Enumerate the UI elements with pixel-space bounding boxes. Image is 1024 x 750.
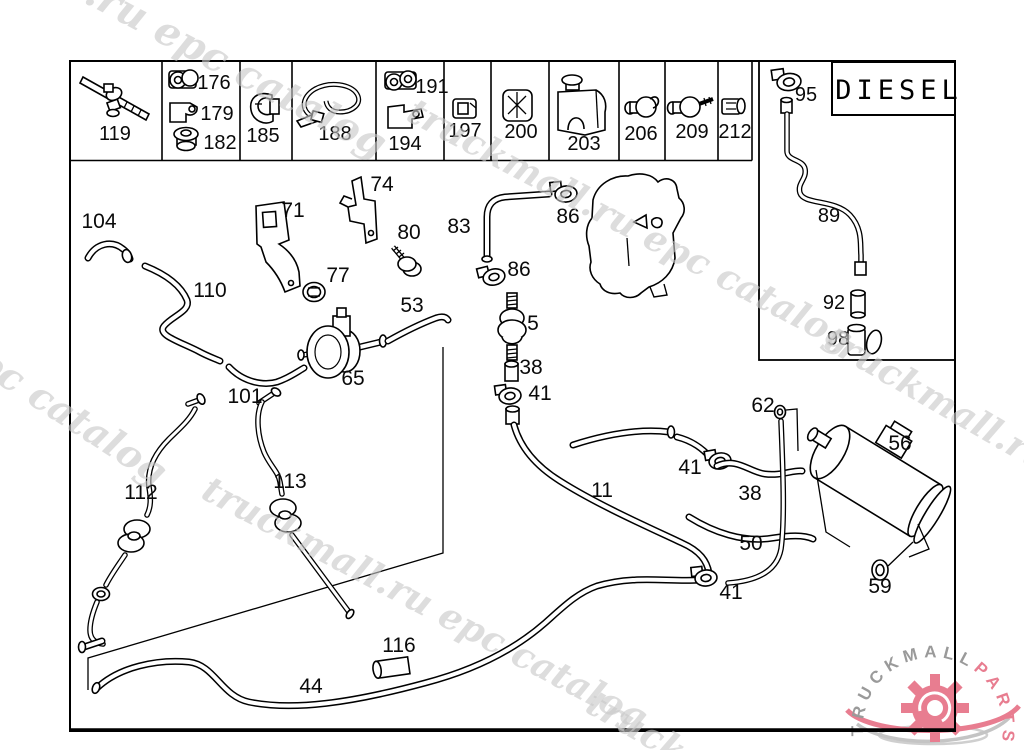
label-203: 203 <box>567 133 600 155</box>
label-62: 62 <box>751 394 774 417</box>
pipe-113 <box>258 386 355 620</box>
label-176: 176 <box>197 72 230 94</box>
label-113: 113 <box>273 470 306 493</box>
clamp-191-icon <box>385 71 416 90</box>
hose-53 <box>388 317 448 341</box>
label-5: 5 <box>527 312 539 335</box>
label-11: 11 <box>591 479 613 502</box>
sleeve-92 <box>851 290 865 318</box>
cable-tie-188-icon <box>297 84 359 127</box>
main-parts <box>79 174 970 706</box>
label-41-mid: 41 <box>678 456 701 479</box>
label-71: 71 <box>281 199 304 222</box>
diagram-canvas: 119 176 179 182 185 188 191 194 197 200 … <box>0 0 1024 750</box>
diesel-title: DIESEL <box>835 75 963 106</box>
vent-hose-89 <box>781 98 866 276</box>
label-86-top: 86 <box>556 205 579 228</box>
hose-clamp-41-top <box>494 383 522 406</box>
bracket-194-icon <box>388 105 423 128</box>
label-86-mid: 86 <box>507 258 530 281</box>
ring-62 <box>775 406 799 452</box>
clip-197-icon <box>453 99 476 118</box>
grommet-182-icon <box>174 128 198 151</box>
hose-38-right <box>717 463 802 474</box>
label-182: 182 <box>203 132 236 154</box>
holder-203-icon <box>558 75 606 135</box>
label-59: 59 <box>868 575 891 598</box>
label-65: 65 <box>341 367 364 390</box>
label-89: 89 <box>818 205 840 227</box>
grommet-77 <box>303 283 325 302</box>
part-labels: 119 176 179 182 185 188 191 194 197 200 … <box>81 72 962 698</box>
fuel-filter-56 <box>789 386 970 557</box>
label-50: 50 <box>739 532 762 555</box>
connector-212-icon <box>722 99 745 115</box>
label-191: 191 <box>415 76 448 98</box>
label-80: 80 <box>397 221 420 244</box>
sleeve-38 <box>505 361 518 381</box>
hose-83 <box>482 194 549 262</box>
pipe-112 <box>79 393 207 653</box>
label-38-right: 38 <box>738 482 761 505</box>
elbow-98 <box>848 325 884 356</box>
filter-5 <box>498 293 526 360</box>
label-185: 185 <box>246 125 279 147</box>
clip-200-icon <box>503 90 532 121</box>
clamp-209-icon <box>668 97 714 117</box>
label-104: 104 <box>81 210 116 233</box>
clip-185-icon <box>251 94 279 123</box>
label-116: 116 <box>382 634 415 657</box>
label-212: 212 <box>718 121 751 143</box>
label-41-low: 41 <box>719 581 742 604</box>
label-209: 209 <box>675 121 708 143</box>
label-112: 112 <box>124 481 157 504</box>
label-119: 119 <box>99 123 131 145</box>
label-53: 53 <box>400 294 423 317</box>
label-41-top: 41 <box>528 382 551 405</box>
label-206: 206 <box>624 123 657 145</box>
cable-tie-119-icon <box>80 77 149 120</box>
label-95: 95 <box>795 84 817 106</box>
parts-catalog-page: TRUCKMALLPARTS <box>0 0 1024 750</box>
bolt-80 <box>393 247 421 276</box>
clamp-206-icon <box>625 97 658 117</box>
hose-104 <box>88 244 133 264</box>
sleeve-116 <box>372 657 410 679</box>
clamp-176-icon <box>169 70 198 88</box>
hose-101 <box>229 367 304 383</box>
clip-179-icon <box>170 103 197 122</box>
label-188: 188 <box>318 123 351 145</box>
label-92: 92 <box>823 292 845 314</box>
label-179: 179 <box>200 103 233 125</box>
engine-cover-bracket <box>587 174 685 298</box>
label-77: 77 <box>326 264 349 287</box>
label-56: 56 <box>888 432 911 455</box>
hose-clamp-86-mid <box>477 263 507 289</box>
label-74: 74 <box>370 173 394 196</box>
label-101: 101 <box>227 385 262 408</box>
hose-clamp-86-top <box>550 180 578 204</box>
label-110: 110 <box>193 279 226 302</box>
label-200: 200 <box>504 121 537 143</box>
label-197: 197 <box>448 120 481 142</box>
label-83: 83 <box>447 215 470 238</box>
label-194: 194 <box>388 133 421 155</box>
label-38-mid: 38 <box>519 356 542 379</box>
label-98: 98 <box>827 328 849 350</box>
label-44: 44 <box>299 675 323 698</box>
return-hose-branch <box>573 426 711 458</box>
